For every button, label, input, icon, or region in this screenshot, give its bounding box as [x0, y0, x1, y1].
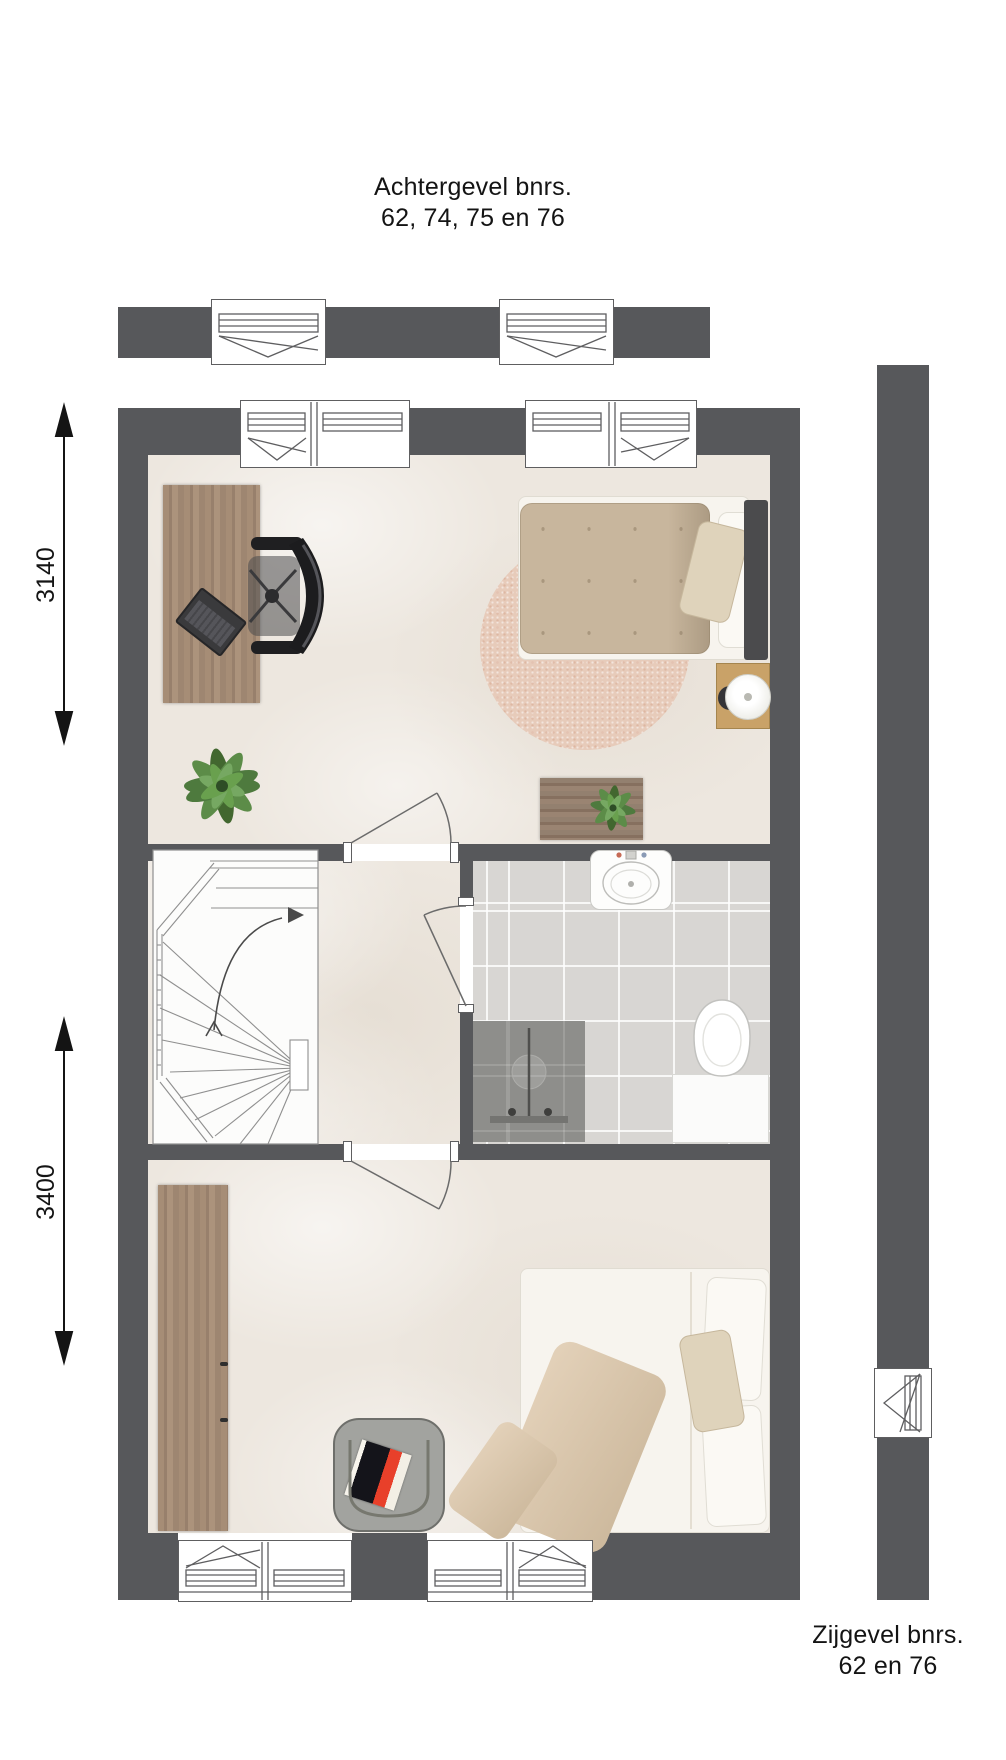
exterior-wall-left — [118, 408, 148, 1600]
door2-jamb-left — [343, 1141, 352, 1162]
window-bottom-2 — [427, 1540, 593, 1602]
window-top-2 — [525, 400, 697, 468]
sideboard — [540, 778, 643, 840]
single-bed-duvet — [520, 503, 710, 654]
door2-jamb-right — [450, 1141, 459, 1162]
bathroom-door-jamb-top — [458, 897, 474, 906]
window-top-1 — [240, 400, 410, 468]
window-back-facade-2 — [499, 299, 614, 365]
back-facade-caption: Achtergevel bnrs. 62, 74, 75 en 76 — [258, 172, 688, 234]
floorplan-canvas: Achtergevel bnrs. 62, 74, 75 en 76 Zijge… — [0, 0, 1006, 1760]
door1-jamb-right — [450, 842, 459, 863]
shower-area — [473, 1021, 585, 1142]
stair-bottom-wall — [148, 1144, 345, 1160]
wardrobe-handle-1 — [220, 1362, 228, 1366]
window-back-facade-1 — [211, 299, 326, 365]
window-side-facade — [874, 1368, 932, 1438]
hall-floor — [148, 861, 460, 1144]
dimension-label-3400: 3400 — [32, 1137, 62, 1247]
single-bed-headboard — [744, 500, 768, 660]
toilet-cistern — [672, 1074, 769, 1143]
back-facade-caption-line2: 62, 74, 75 en 76 — [258, 203, 688, 234]
side-facade-caption-line2: 62 en 76 — [770, 1651, 1006, 1682]
divider-wall-left — [148, 844, 345, 861]
door1-jamb-left — [343, 842, 352, 863]
exterior-wall-top — [118, 408, 800, 455]
window-bottom-1 — [178, 1540, 352, 1602]
sink-vanity — [590, 850, 672, 910]
wardrobe — [158, 1185, 228, 1531]
neighbour-facade-wall — [118, 307, 710, 358]
bathroom-bottom-wall — [457, 1144, 770, 1160]
bathroom-wall-lower — [460, 1006, 473, 1144]
side-facade-caption: Zijgevel bnrs. 62 en 76 — [770, 1620, 1006, 1682]
wardrobe-handle-2 — [220, 1418, 228, 1422]
exterior-wall-bottom-right — [593, 1533, 800, 1600]
bathroom-door-jamb-bottom — [458, 1004, 474, 1013]
lamp-finial — [744, 693, 752, 701]
exterior-wall-bottom-left — [118, 1533, 178, 1600]
back-facade-caption-line1: Achtergevel bnrs. — [258, 172, 688, 203]
exterior-wall-bottom-middle — [352, 1533, 427, 1600]
exterior-wall-right — [770, 408, 800, 1600]
dimension-label-3140: 3140 — [32, 520, 62, 630]
side-facade-caption-line1: Zijgevel bnrs. — [770, 1620, 1006, 1651]
